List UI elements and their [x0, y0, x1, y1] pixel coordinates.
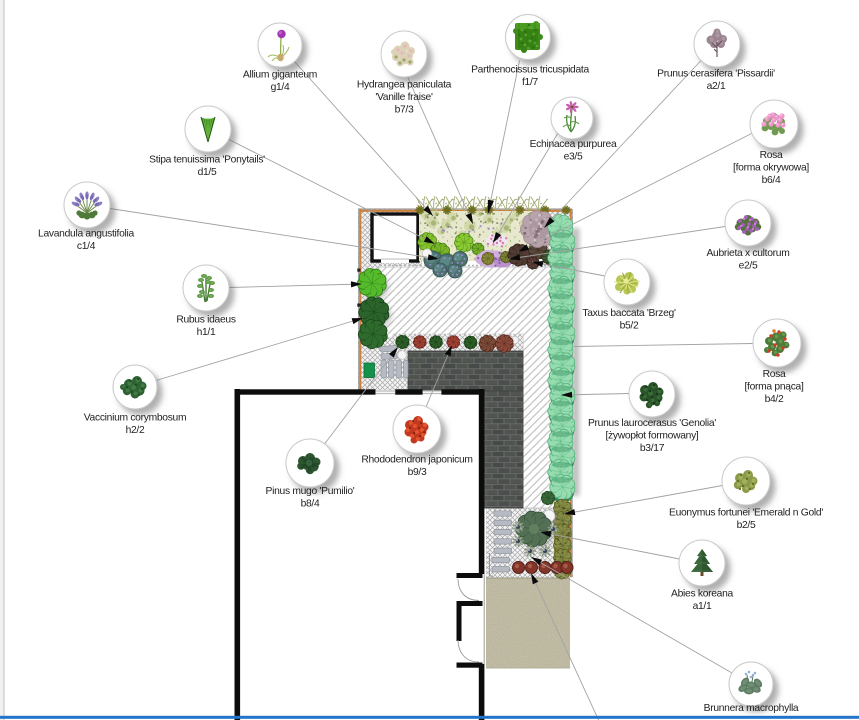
svg-text:f1/7: f1/7 — [522, 77, 539, 88]
svg-text:Allium giganteum: Allium giganteum — [243, 70, 317, 81]
svg-text:Abies koreana: Abies koreana — [671, 589, 734, 600]
svg-text:Prunus cerasifera 'Pissardii': Prunus cerasifera 'Pissardii' — [657, 69, 775, 80]
svg-text:[żywopłot formowany]: [żywopłot formowany] — [605, 431, 698, 442]
svg-text:Euonymus fortunei 'Emerald n G: Euonymus fortunei 'Emerald n Gold' — [669, 508, 823, 519]
svg-text:b6/4: b6/4 — [762, 175, 781, 186]
svg-text:Rubus idaeus: Rubus idaeus — [176, 315, 236, 326]
svg-text:b8/4: b8/4 — [301, 499, 320, 510]
svg-text:d1/5: d1/5 — [198, 167, 217, 178]
svg-text:Taxus baccata 'Brzeg': Taxus baccata 'Brzeg' — [582, 308, 676, 319]
svg-text:Vaccinium corymbosum: Vaccinium corymbosum — [84, 413, 187, 424]
svg-text:e3/5: e3/5 — [564, 152, 583, 163]
svg-text:Parthenocissus tricuspidata: Parthenocissus tricuspidata — [471, 65, 589, 76]
svg-text:Prunus laurocerasus 'Genolia': Prunus laurocerasus 'Genolia' — [588, 418, 716, 429]
svg-text:b4/2: b4/2 — [765, 394, 784, 405]
svg-text:Rosa: Rosa — [760, 150, 783, 161]
svg-text:b3/17: b3/17 — [640, 443, 665, 454]
svg-text:Stipa tenuissima 'Ponytails': Stipa tenuissima 'Ponytails' — [149, 155, 265, 166]
svg-text:Brunnera macrophylla: Brunnera macrophylla — [704, 703, 799, 714]
svg-text:b2/5: b2/5 — [737, 520, 756, 531]
svg-text:h2/2: h2/2 — [126, 425, 145, 436]
svg-text:'Vanille fraise': 'Vanille fraise' — [375, 92, 433, 103]
svg-text:a2/1: a2/1 — [707, 81, 726, 92]
svg-text:e2/5: e2/5 — [739, 261, 758, 272]
svg-text:Aubrieta x cultorum: Aubrieta x cultorum — [706, 248, 789, 259]
svg-text:Pinus mugo 'Pumilio': Pinus mugo 'Pumilio' — [266, 486, 355, 497]
svg-text:b5/2: b5/2 — [620, 321, 639, 332]
svg-text:Echinacea purpurea: Echinacea purpurea — [530, 139, 617, 150]
svg-text:[forma okrywowa]: [forma okrywowa] — [733, 163, 809, 174]
svg-text:Hydrangea paniculata: Hydrangea paniculata — [357, 80, 452, 91]
svg-text:Lavandula angustifolia: Lavandula angustifolia — [38, 229, 134, 240]
svg-text:Rhododendron japonicum: Rhododendron japonicum — [361, 455, 472, 466]
svg-text:g1/4: g1/4 — [271, 82, 290, 93]
svg-text:h1/1: h1/1 — [197, 327, 216, 338]
svg-text:c1/4: c1/4 — [77, 241, 96, 252]
svg-text:Rosa: Rosa — [763, 369, 786, 380]
svg-text:[forma pnąca]: [forma pnąca] — [744, 382, 803, 393]
svg-text:b7/3: b7/3 — [395, 105, 414, 116]
svg-text:a1/1: a1/1 — [693, 601, 712, 612]
svg-text:b9/3: b9/3 — [408, 467, 427, 478]
